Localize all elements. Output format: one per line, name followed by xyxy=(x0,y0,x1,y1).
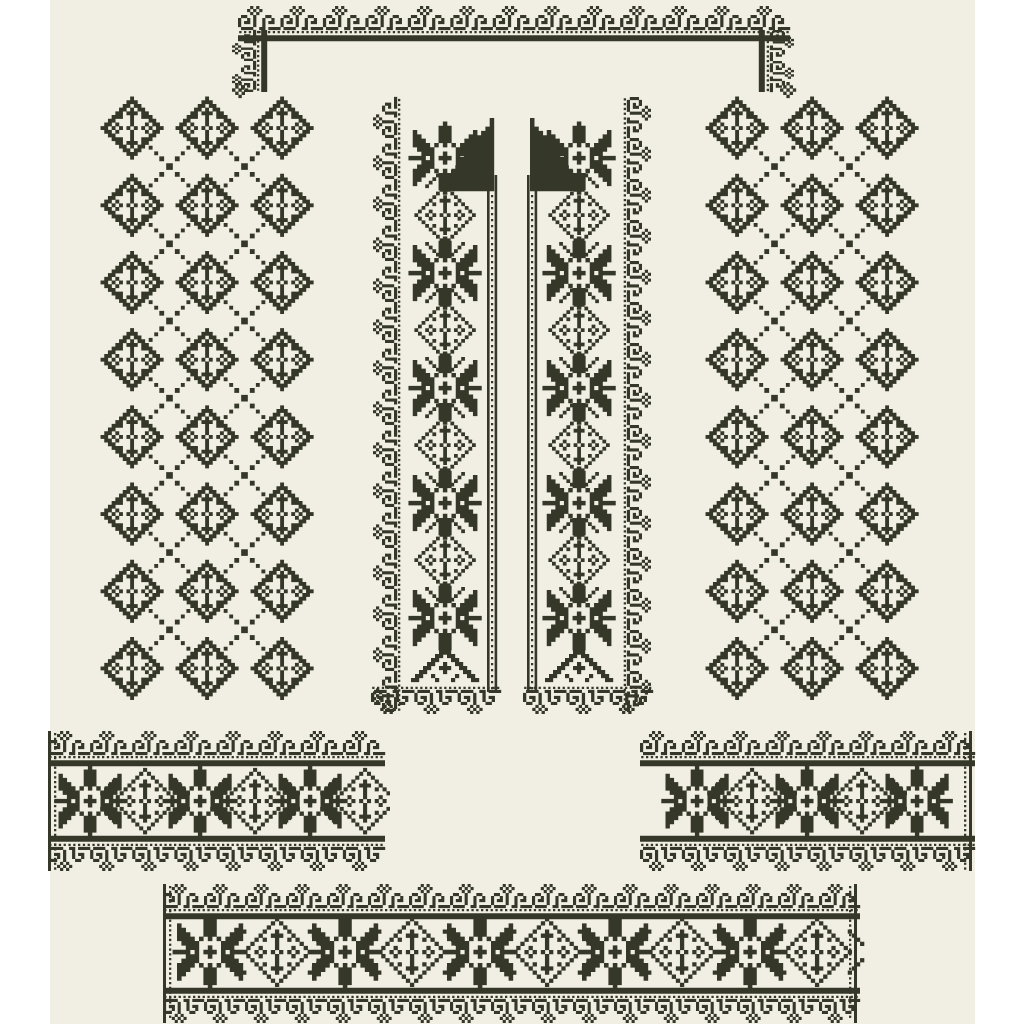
embroidery-pattern-canvas xyxy=(0,0,1024,1024)
embroidery-pattern-page xyxy=(0,0,1024,1024)
